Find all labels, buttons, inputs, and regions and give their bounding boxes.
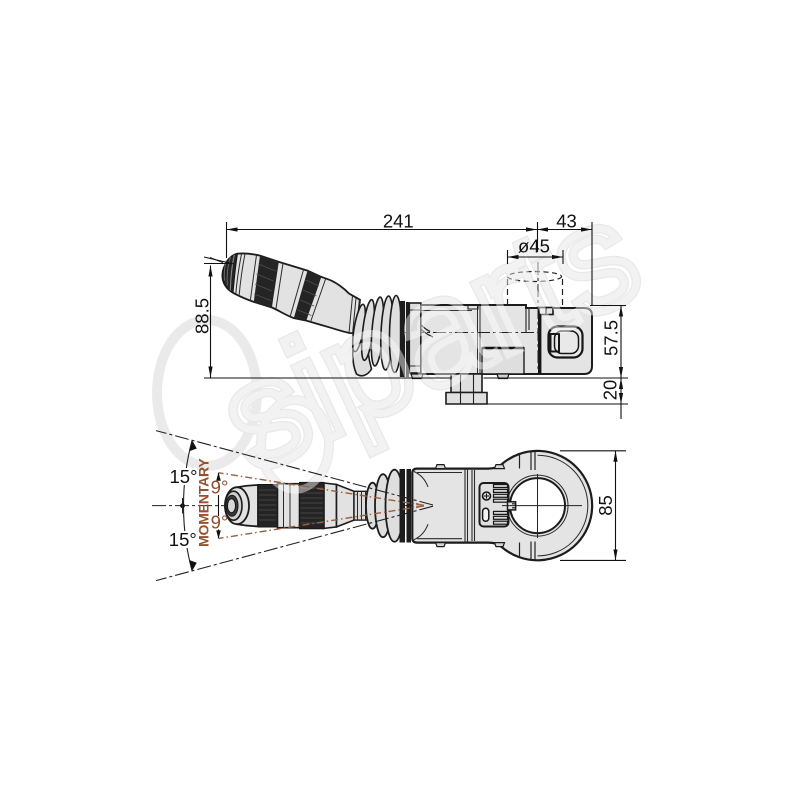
svg-text:15°: 15° <box>169 529 197 550</box>
svg-text:MOMENTARY: MOMENTARY <box>196 458 212 547</box>
svg-text:9°: 9° <box>211 477 229 498</box>
svg-text:57.5: 57.5 <box>601 320 622 356</box>
svg-text:9°: 9° <box>211 512 229 533</box>
svg-text:20: 20 <box>600 380 621 401</box>
svg-text:15°: 15° <box>170 466 198 487</box>
svg-text:88.5: 88.5 <box>192 298 213 334</box>
svg-text:ø45: ø45 <box>518 236 550 257</box>
svg-text:85: 85 <box>595 495 616 516</box>
svg-text:43: 43 <box>556 211 577 232</box>
svg-text:241: 241 <box>383 211 414 232</box>
